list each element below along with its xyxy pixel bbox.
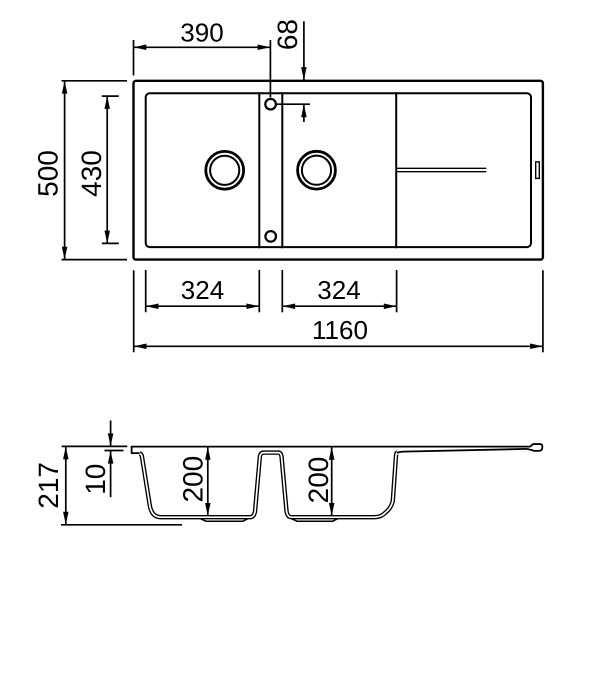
svg-text:68: 68 <box>272 19 303 50</box>
svg-text:200: 200 <box>303 457 334 504</box>
svg-text:324: 324 <box>181 275 224 305</box>
svg-text:324: 324 <box>317 275 360 305</box>
svg-text:430: 430 <box>76 150 107 197</box>
svg-text:217: 217 <box>33 462 64 509</box>
svg-text:500: 500 <box>32 150 63 197</box>
svg-text:390: 390 <box>180 17 223 47</box>
svg-text:200: 200 <box>177 456 208 503</box>
svg-text:1160: 1160 <box>312 315 368 345</box>
svg-text:10: 10 <box>80 464 111 495</box>
